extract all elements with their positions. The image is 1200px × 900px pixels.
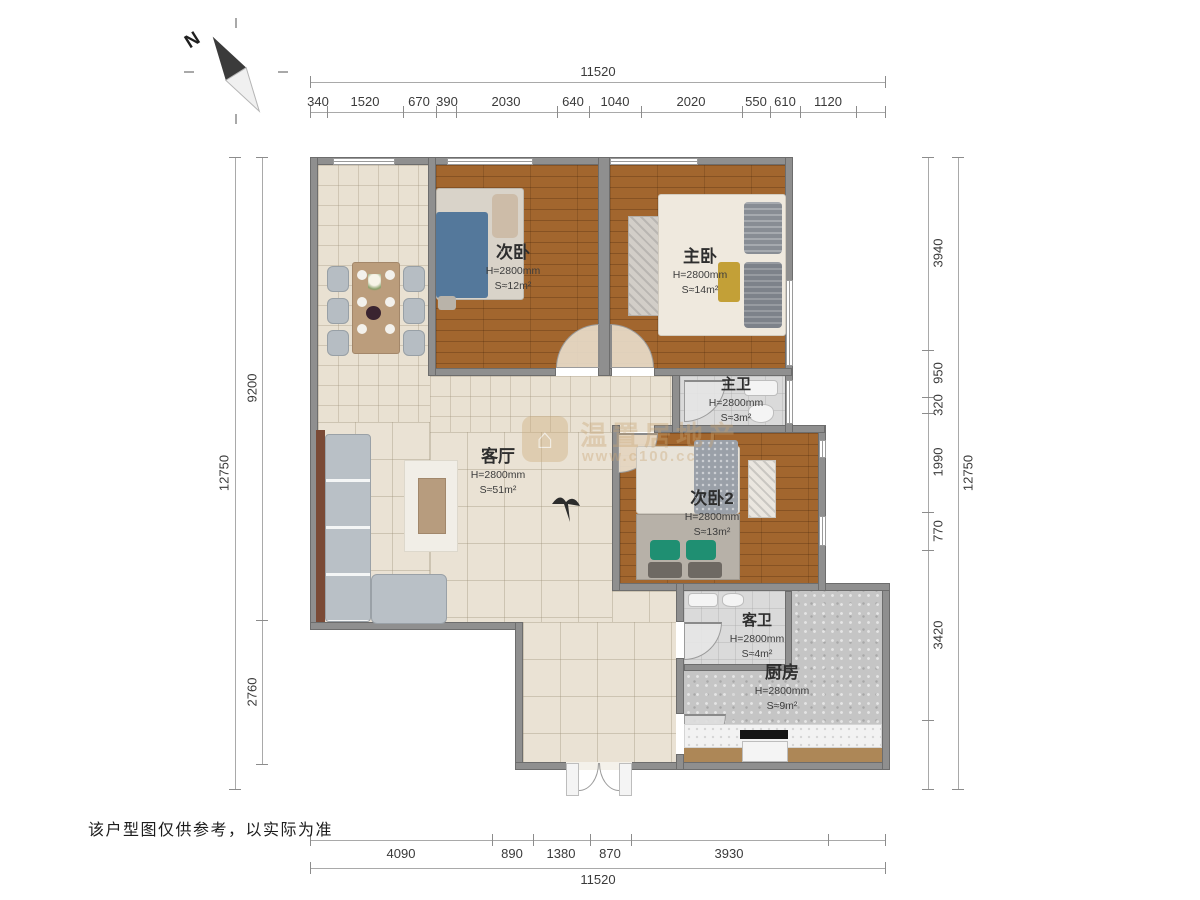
sofa-chaise: [371, 574, 447, 624]
dim-label: 670: [408, 94, 430, 109]
bedside-table: [438, 296, 456, 310]
dim-label: 870: [599, 846, 621, 861]
room-name: 主卧: [630, 246, 770, 267]
dim-tick: [922, 720, 934, 721]
dim-label-bottom-total: 11520: [580, 872, 615, 887]
dim-label: 3940: [931, 239, 946, 268]
dining-chair: [327, 330, 349, 356]
wall-dining-divider: [428, 157, 436, 376]
wall-bedrooms-bottom-a: [428, 368, 556, 376]
dim-tick: [590, 834, 591, 846]
room-label-bedroom3: 次卧2 H=2800mm S≈13m²: [642, 488, 782, 540]
dim-line-right-segments: [928, 157, 929, 790]
dim-tick: [885, 106, 886, 118]
dim-tick: [922, 512, 934, 513]
dim-label: 950: [931, 362, 946, 384]
pillow-dark: [688, 562, 722, 578]
room-height: H=2800mm: [642, 511, 782, 524]
dim-label: 3420: [931, 621, 946, 650]
sofa: [325, 434, 371, 622]
dining-chair: [403, 330, 425, 356]
dim-line-right-total: [958, 157, 959, 790]
plate: [357, 297, 367, 307]
plate: [357, 270, 367, 280]
floorplan-canvas: N 11520 340 1520 670 390 2030 640 1040 2…: [0, 0, 1200, 900]
dim-label: 320: [931, 394, 946, 416]
plate: [385, 270, 395, 280]
room-name: 厨房: [712, 662, 852, 683]
pillow-green: [686, 540, 716, 560]
entry-door-leaf-left: [566, 763, 579, 796]
room-label-kitchen: 厨房 H=2800mm S≈9m²: [712, 662, 852, 714]
dim-label: 2030: [492, 94, 521, 109]
room-area: S≈51m²: [428, 484, 568, 497]
dim-tick: [885, 834, 886, 846]
watermark-site: www.c100.cc: [582, 448, 697, 465]
room-height: H=2800mm: [687, 633, 827, 646]
wall-kitchen-right: [882, 583, 890, 770]
dim-tick: [229, 157, 241, 158]
dim-tick: [403, 106, 404, 118]
dim-label: 9200: [245, 374, 260, 403]
dim-tick: [492, 834, 493, 846]
north-arrow-icon: N: [180, 16, 296, 126]
dim-label: 1990: [931, 448, 946, 477]
dim-tick: [742, 106, 743, 118]
window-master-right: [786, 280, 793, 366]
dim-tick: [256, 764, 268, 765]
room-area: S≈12m²: [443, 280, 583, 293]
dim-line-left-total: [235, 157, 236, 790]
window-bedroom2: [447, 158, 533, 165]
room-name: 主卫: [666, 376, 806, 395]
flower-decor: [368, 274, 381, 294]
sink-guestbath: [688, 593, 718, 607]
window-living: [333, 158, 395, 165]
dim-tick: [952, 157, 964, 158]
dim-tick: [885, 862, 886, 874]
window-master-bedroom: [610, 158, 698, 165]
watermark: ⌂ 温置居地产 www.c100.cc: [522, 414, 742, 474]
dim-tick: [256, 157, 268, 158]
dining-chair: [327, 266, 349, 292]
dim-label: 1380: [547, 846, 576, 861]
dim-label: 3930: [715, 846, 744, 861]
plate: [385, 297, 395, 307]
dim-label: 2020: [677, 94, 706, 109]
room-area: S≈9m²: [712, 700, 852, 713]
room-name: 客卫: [687, 612, 827, 631]
room-name: 次卧2: [642, 488, 782, 509]
room-area: S≈13m²: [642, 526, 782, 539]
dim-label: 340: [307, 94, 329, 109]
room-area: S≈14m²: [630, 284, 770, 297]
dim-tick: [256, 620, 268, 621]
dim-label: 390: [436, 94, 458, 109]
dim-tick: [885, 76, 886, 88]
pillow-green: [650, 540, 680, 560]
dim-tick: [922, 789, 934, 790]
entry-door-leaf-right: [619, 763, 632, 796]
dim-label: 640: [562, 94, 584, 109]
room-height: H=2800mm: [666, 397, 806, 410]
house-icon: ⌂: [522, 416, 568, 462]
dim-tick: [310, 76, 311, 88]
dining-chair: [327, 298, 349, 324]
dim-line-bottom-segments: [310, 840, 886, 841]
window-bedroom3-b: [819, 516, 826, 546]
room-label-master: 主卧 H=2800mm S≈14m²: [630, 246, 770, 298]
north-label: N: [181, 28, 204, 53]
room-label-guestbath: 客卫 H=2800mm S≈4m²: [687, 612, 827, 661]
dim-tick: [641, 106, 642, 118]
dim-label-left-total: 12750: [217, 455, 232, 491]
entry-door-arc-right: [599, 763, 619, 791]
wall-guestbath-left-c: [676, 754, 684, 770]
dim-label: 770: [931, 520, 946, 542]
dim-tick: [631, 834, 632, 846]
dim-label: 550: [745, 94, 767, 109]
dim-tick: [922, 350, 934, 351]
floor-entry-corridor: [523, 622, 676, 762]
wall-corridor-left: [515, 622, 523, 770]
wall-bottom-a: [515, 762, 568, 770]
dim-tick: [828, 834, 829, 846]
dim-label: 1520: [351, 94, 380, 109]
toilet-guestbath: [722, 593, 744, 607]
pillow: [492, 194, 518, 238]
dim-label: 610: [774, 94, 796, 109]
wall-guestbath-left-a: [676, 583, 684, 622]
dim-label-top-total: 11520: [580, 64, 615, 79]
room-height: H=2800mm: [630, 269, 770, 282]
plate: [385, 324, 395, 334]
dining-chair: [403, 266, 425, 292]
dim-tick: [856, 106, 857, 118]
sofa-back: [316, 430, 325, 622]
room-height: H=2800mm: [443, 265, 583, 278]
wall-block-top: [612, 583, 890, 591]
room-name: 次卧: [443, 242, 583, 263]
wall-guestbath-left-b: [676, 658, 684, 714]
room-label-bedroom2: 次卧 H=2800mm S≈12m²: [443, 242, 583, 294]
center-dish: [366, 306, 381, 320]
dim-tick: [589, 106, 590, 118]
floor-living-nook: [612, 591, 676, 622]
kitchen-appliance: [742, 741, 788, 762]
dim-label-right-total: 12750: [961, 455, 976, 491]
dim-label: 890: [501, 846, 523, 861]
wall-bedrooms-bottom-c: [654, 368, 792, 376]
dim-label: 4090: [387, 846, 416, 861]
dining-chair: [403, 298, 425, 324]
dim-tick: [310, 862, 311, 874]
dim-tick: [800, 106, 801, 118]
dim-tick: [922, 550, 934, 551]
dim-line-bottom-total: [310, 868, 886, 869]
dim-label: 2760: [245, 678, 260, 707]
dim-tick: [533, 834, 534, 846]
disclaimer-text: 该户型图仅供参考，以实际为准: [88, 816, 333, 840]
dim-line-left-segments: [262, 157, 263, 765]
pillow-dark: [648, 562, 682, 578]
stove: [740, 730, 788, 739]
dim-label: 1120: [814, 94, 842, 109]
room-height: H=2800mm: [712, 685, 852, 698]
dim-tick: [770, 106, 771, 118]
dim-tick: [229, 789, 241, 790]
dim-tick: [557, 106, 558, 118]
dim-label: 1040: [601, 94, 630, 109]
entry-door-arc-left: [579, 763, 599, 791]
dim-tick: [952, 789, 964, 790]
wall-bottom-b: [630, 762, 890, 770]
dim-tick: [922, 157, 934, 158]
room-area: S≈4m²: [687, 648, 827, 661]
window-bedroom3-a: [819, 440, 826, 458]
plate: [357, 324, 367, 334]
dim-line-top-total: [310, 82, 886, 83]
